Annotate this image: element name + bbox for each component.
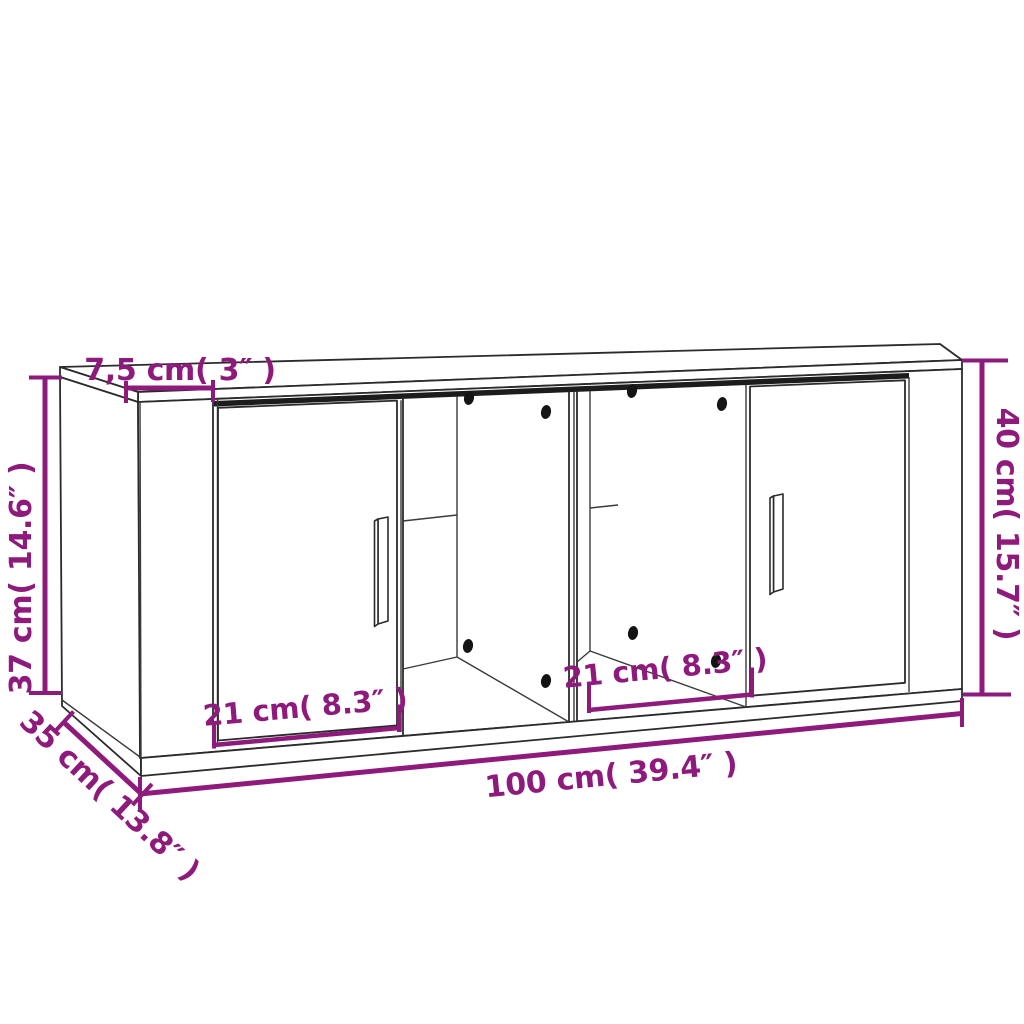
dim-label-left-height: 37 cm( 14.6″ ) [4,462,39,695]
handle-front [774,494,784,592]
handle-side [375,519,379,627]
dim-label-top-thickness: 7,5 cm( 3″ ) [84,353,276,388]
dim-label-right-height: 40 cm( 15.7″ ) [989,408,1024,641]
dimension-left-height: 37 cm( 14.6″ ) [4,378,62,695]
handle-front [378,517,388,624]
left-side-face [60,377,141,776]
cabinet-left-side-panel [60,377,141,776]
dimension-diagram-page: 7,5 cm( 3″ ) 37 cm( 14.6″ ) 40 cm( 15.7″… [0,0,1024,1024]
cabinet-door-right [746,380,905,706]
cabinet-dimension-drawing: 7,5 cm( 3″ ) 37 cm( 14.6″ ) 40 cm( 15.7″… [0,0,1024,1024]
handle-side [770,496,774,595]
door-handle-right-icon [770,494,783,595]
door-handle-left-icon [375,517,389,627]
dimension-right-height: 40 cm( 15.7″ ) [962,361,1024,695]
